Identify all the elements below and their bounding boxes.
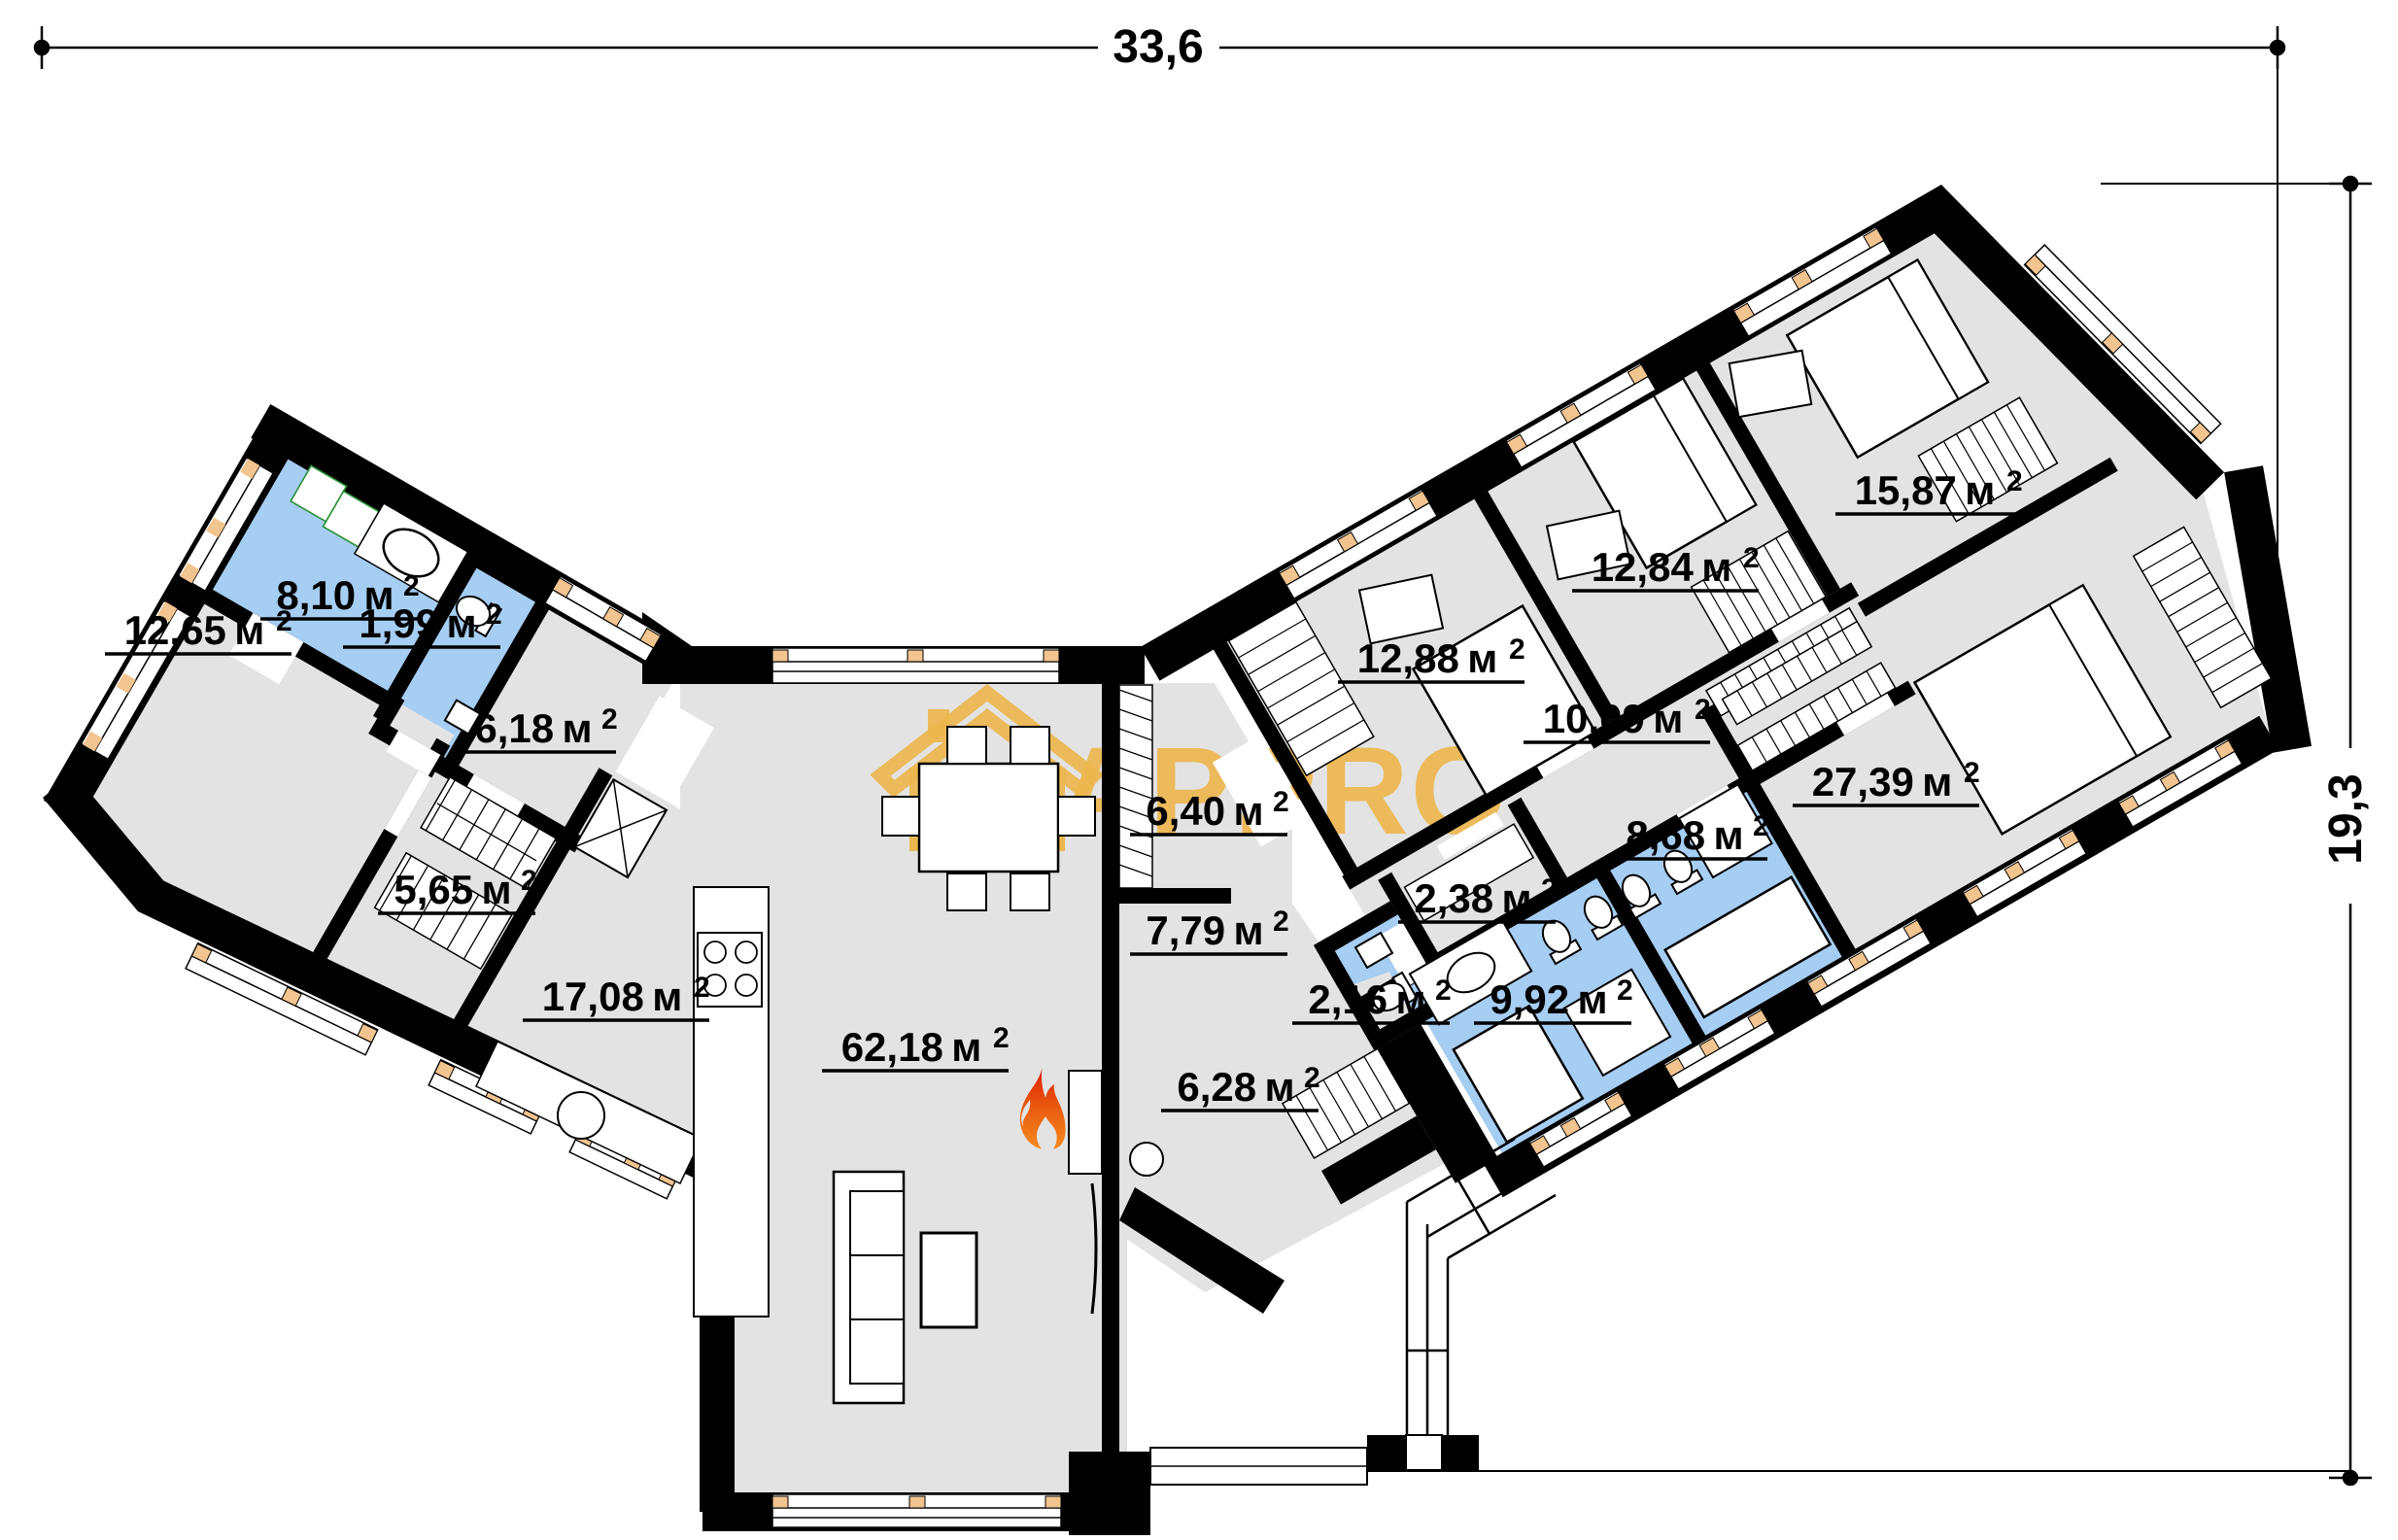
svg-text:8,68 м: 8,68 м — [1626, 812, 1743, 858]
svg-text:33,6: 33,6 — [1113, 21, 1203, 73]
svg-text:6,18 м: 6,18 м — [474, 705, 592, 751]
svg-text:2: 2 — [601, 703, 618, 736]
svg-text:19,3: 19,3 — [2320, 773, 2372, 864]
svg-text:2: 2 — [1541, 873, 1558, 906]
svg-text:10,09 м: 10,09 м — [1543, 696, 1684, 741]
svg-text:2: 2 — [1617, 975, 1633, 1007]
svg-text:12,88 м: 12,88 м — [1357, 635, 1498, 681]
svg-text:2: 2 — [993, 1022, 1010, 1054]
svg-text:2: 2 — [1743, 542, 1760, 574]
svg-text:5,65 м: 5,65 м — [394, 867, 511, 912]
svg-text:2: 2 — [1273, 786, 1289, 818]
svg-text:2: 2 — [1695, 694, 1711, 726]
svg-text:2: 2 — [1435, 975, 1452, 1007]
svg-text:2: 2 — [1753, 810, 1769, 842]
svg-text:15,87 м: 15,87 м — [1855, 467, 1996, 513]
svg-text:12,84 м: 12,84 м — [1592, 544, 1732, 590]
svg-text:12,65 м: 12,65 м — [124, 607, 265, 653]
svg-text:2: 2 — [1964, 757, 1980, 789]
svg-text:2: 2 — [486, 599, 502, 631]
svg-text:2: 2 — [521, 865, 537, 897]
svg-text:17,08 м: 17,08 м — [542, 974, 683, 1019]
svg-text:2: 2 — [2006, 465, 2023, 497]
svg-text:2,38 м: 2,38 м — [1414, 875, 1531, 921]
svg-text:2: 2 — [1304, 1062, 1320, 1094]
svg-text:6,28 м: 6,28 м — [1177, 1064, 1294, 1110]
svg-text:2: 2 — [403, 570, 420, 602]
svg-text:2,16 м: 2,16 м — [1308, 976, 1425, 1022]
svg-text:7,79 м: 7,79 м — [1146, 907, 1263, 953]
svg-text:2: 2 — [1273, 906, 1289, 938]
svg-text:62,18 м: 62,18 м — [841, 1024, 982, 1070]
svg-text:6,40 м: 6,40 м — [1146, 788, 1263, 834]
svg-text:1,99 м: 1,99 м — [359, 600, 476, 646]
svg-text:27,39 м: 27,39 м — [1812, 759, 1953, 804]
svg-text:9,92 м: 9,92 м — [1490, 976, 1607, 1022]
svg-text:2: 2 — [1509, 633, 1525, 666]
svg-text:2: 2 — [694, 972, 710, 1004]
svg-text:2: 2 — [276, 605, 292, 637]
